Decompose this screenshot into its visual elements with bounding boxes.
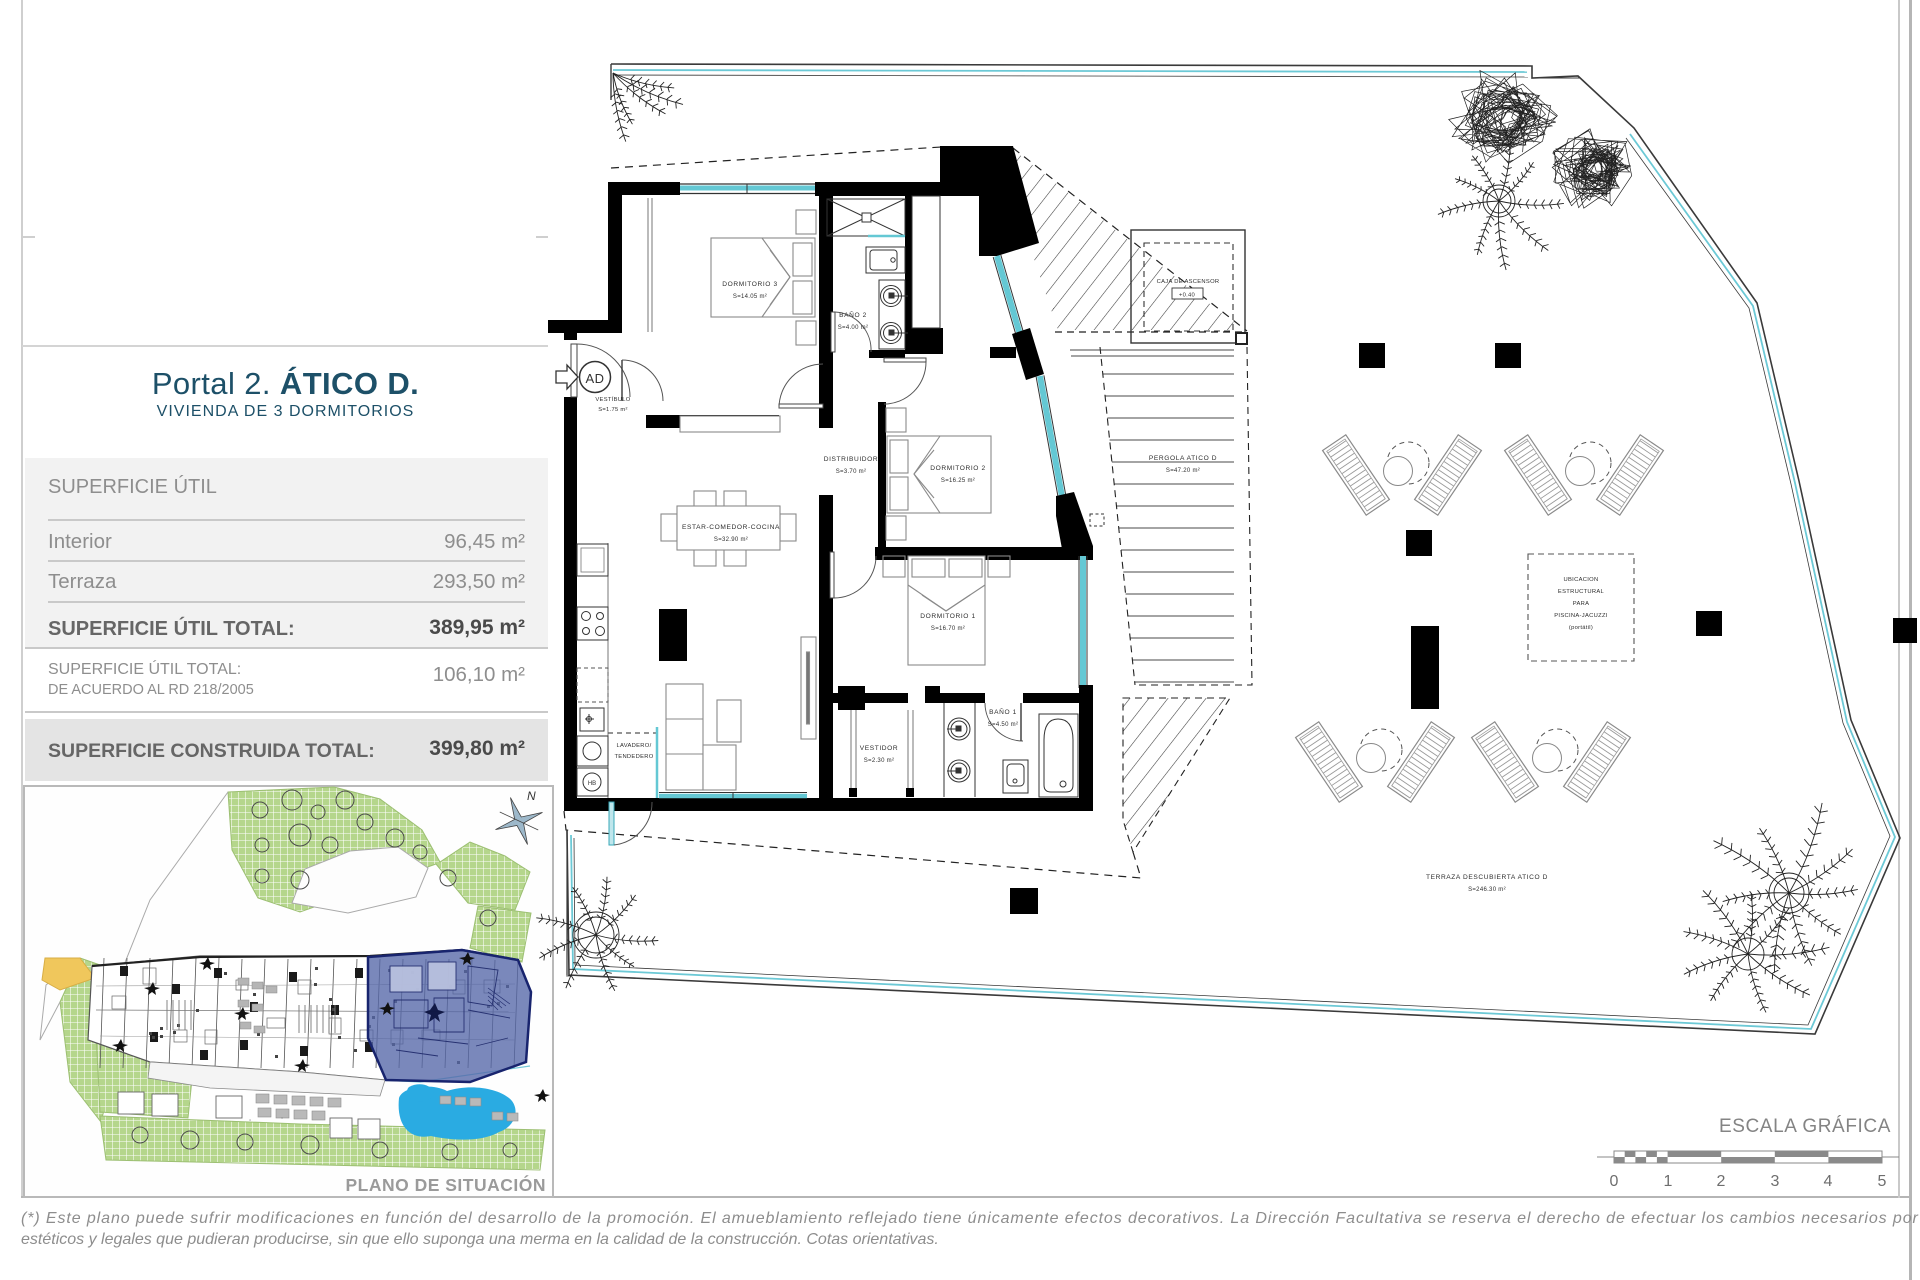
svg-text:HB: HB	[588, 781, 596, 787]
svg-text:DORMITORIO 1: DORMITORIO 1	[920, 613, 975, 620]
svg-text:ESTRUCTURAL: ESTRUCTURAL	[1558, 589, 1605, 595]
svg-text:S=1.75 m²: S=1.75 m²	[598, 407, 628, 413]
svg-text:BAÑO 2: BAÑO 2	[839, 310, 867, 319]
svg-text:PARA: PARA	[1573, 601, 1590, 607]
svg-text:3: 3	[1771, 1173, 1780, 1190]
svg-text:S=2.30 m²: S=2.30 m²	[864, 758, 895, 764]
svg-text:CAJA DE ASCENSOR: CAJA DE ASCENSOR	[1157, 279, 1220, 285]
svg-text:PISCINA-JACUZZI: PISCINA-JACUZZI	[1554, 613, 1608, 619]
svg-text:DORMITORIO 2: DORMITORIO 2	[930, 465, 985, 472]
svg-text:S=4.50 m²: S=4.50 m²	[988, 722, 1019, 728]
svg-text:S=3.70 m²: S=3.70 m²	[836, 469, 867, 475]
svg-text:LAVADERO/: LAVADERO/	[616, 743, 651, 749]
svg-text:5: 5	[1878, 1173, 1887, 1190]
svg-text:ESCALA GRÁFICA: ESCALA GRÁFICA	[1719, 1116, 1891, 1137]
svg-text:DORMITORIO 3: DORMITORIO 3	[722, 281, 777, 288]
svg-text:TENDEDERO: TENDEDERO	[614, 754, 653, 760]
svg-text:DISTRIBUIDOR: DISTRIBUIDOR	[824, 456, 878, 463]
svg-text:(portátil): (portátil)	[1569, 625, 1593, 631]
svg-text:S=32.90 m²: S=32.90 m²	[714, 537, 748, 543]
svg-text:PLANO DE SITUACIÓN: PLANO DE SITUACIÓN	[345, 1174, 546, 1195]
svg-text:BAÑO 1: BAÑO 1	[989, 707, 1017, 716]
svg-text:0: 0	[1610, 1173, 1619, 1190]
svg-text:2: 2	[1717, 1173, 1726, 1190]
svg-text:4: 4	[1824, 1173, 1833, 1190]
svg-text:UBICACION: UBICACION	[1564, 577, 1599, 583]
svg-text:S=246.30 m²: S=246.30 m²	[1468, 887, 1506, 893]
svg-text:1: 1	[1664, 1173, 1673, 1190]
svg-text:+0.40: +0.40	[1179, 293, 1195, 299]
svg-text:S=47.20 m²: S=47.20 m²	[1166, 468, 1200, 474]
svg-text:N: N	[527, 789, 536, 803]
svg-text:VESTIDOR: VESTIDOR	[860, 745, 899, 752]
svg-text:S=16.25 m²: S=16.25 m²	[941, 478, 975, 484]
svg-text:PERGOLA ATICO D: PERGOLA ATICO D	[1149, 455, 1217, 462]
svg-text:S=4.00 m²: S=4.00 m²	[838, 325, 869, 331]
svg-text:S=16.70 m²: S=16.70 m²	[931, 626, 965, 632]
svg-text:S=14.05 m²: S=14.05 m²	[733, 294, 767, 300]
svg-text:TERRAZA DESCUBIERTA ATICO D: TERRAZA DESCUBIERTA ATICO D	[1426, 874, 1548, 881]
svg-text:ESTAR-COMEDOR-COCINA: ESTAR-COMEDOR-COCINA	[682, 524, 780, 531]
svg-text:VESTÍBULO: VESTÍBULO	[595, 396, 630, 403]
svg-text:AD: AD	[585, 371, 604, 386]
